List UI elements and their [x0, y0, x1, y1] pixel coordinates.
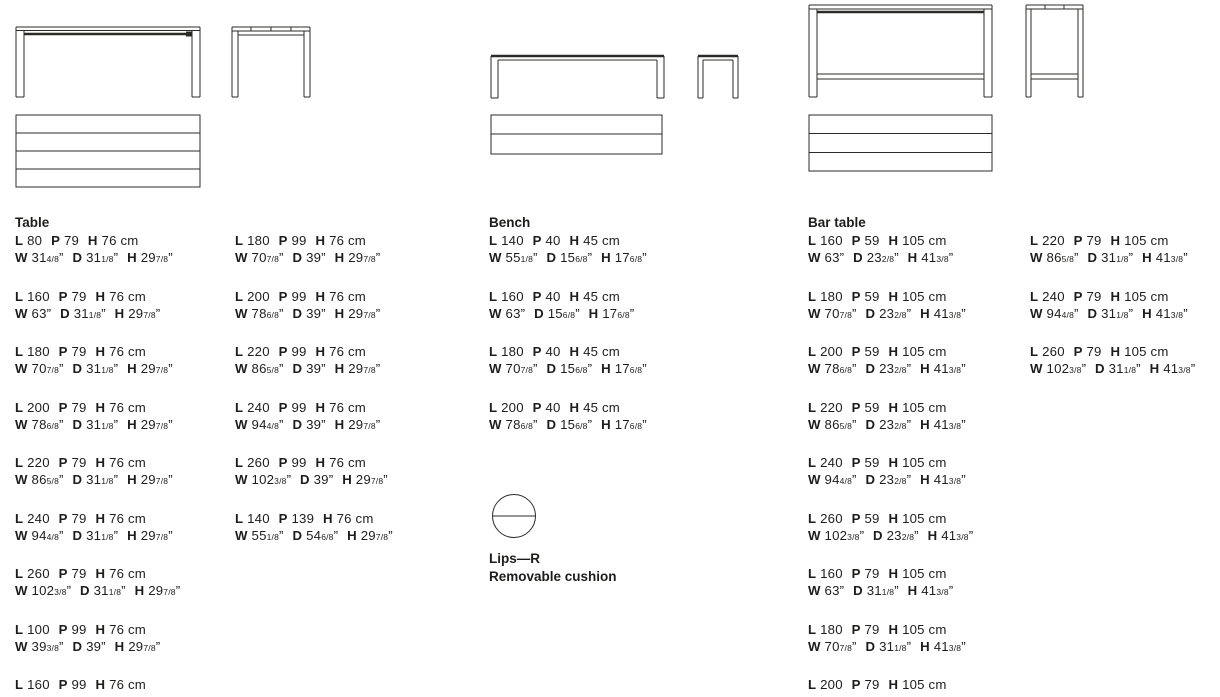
- spec-entry: L 100 P 99 H 76 cmW 393/8” D 39” H 297/8…: [15, 621, 233, 657]
- spec-entry: L 200 P 59 H 105 cmW 786/8” D 232/8” H 4…: [808, 343, 1026, 379]
- spec-entry: L 260 P 59 H 105 cmW 1023/8” D 232/8” H …: [808, 510, 1026, 546]
- table-specs-column-1: L 80 P 79 H 76 cmW 314/8” D 311/8” H 297…: [15, 232, 233, 697]
- spec-line-cm: L 200 P 40 H 45 cm: [489, 399, 707, 416]
- spec-entry: L 220 P 99 H 76 cmW 865/8” D 39” H 297/8…: [235, 343, 453, 379]
- spec-line-cm: L 200 P 59 H 105 cm: [808, 343, 1026, 360]
- spec-line-inches: W 786/8” D 311/8” H 297/8”: [15, 416, 233, 435]
- spec-line-inches: W 1023/8” D 311/8” H 413/8”: [1030, 360, 1220, 379]
- spec-line-inches: W 786/8” D 232/8” H 413/8”: [808, 360, 1026, 379]
- spec-line-inches: W 1023/8” D 311/8” H 297/8”: [15, 582, 233, 601]
- spec-line-inches: W 865/8” D 232/8” H 413/8”: [808, 416, 1026, 435]
- spec-line-cm: L 240 P 59 H 105 cm: [808, 454, 1026, 471]
- spec-line-cm: L 240 P 99 H 76 cm: [235, 399, 453, 416]
- spec-line-cm: L 220 P 59 H 105 cm: [808, 399, 1026, 416]
- spec-entry: L 140 P 139 H 76 cmW 551/8” D 546/8” H 2…: [235, 510, 453, 546]
- spec-line-cm: L 160 P 59 H 105 cm: [808, 232, 1026, 249]
- spec-line-inches: W 551/8” D 546/8” H 297/8”: [235, 527, 453, 546]
- bar-table-top-view-drawing: [808, 114, 993, 172]
- spec-entry: L 160 P 59 H 105 cmW 63” D 232/8” H 413/…: [808, 232, 1026, 268]
- spec-entry: L 140 P 40 H 45 cmW 551/8” D 156/8” H 17…: [489, 232, 707, 268]
- spec-line-inches: W 865/8” D 311/8” H 297/8”: [15, 471, 233, 490]
- spec-line-cm: L 220 P 99 H 76 cm: [235, 343, 453, 360]
- table-front-view-drawing: [15, 26, 201, 98]
- bench-section-title: Bench: [489, 214, 530, 231]
- spec-line-inches: W 1023/8” D 232/8” H 413/8”: [808, 527, 1026, 546]
- table-section-title: Table: [15, 214, 49, 231]
- spec-line-inches: W 551/8” D 156/8” H 176/8”: [489, 249, 707, 268]
- spec-line-cm: L 260 P 79 H 105 cm: [1030, 343, 1220, 360]
- spec-line-inches: W 707/8” D 232/8” H 413/8”: [808, 305, 1026, 324]
- spec-line-cm: L 140 P 139 H 76 cm: [235, 510, 453, 527]
- spec-entry: L 180 P 99 H 76 cmW 707/8” D 39” H 297/8…: [235, 232, 453, 268]
- spec-line-cm: L 200 P 79 H 76 cm: [15, 399, 233, 416]
- spec-line-cm: L 180 P 99 H 76 cm: [235, 232, 453, 249]
- spec-entry: L 200 P 79 H 76 cmW 786/8” D 311/8” H 29…: [15, 399, 233, 435]
- spec-entry: L 260 P 99 H 76 cmW 1023/8” D 39” H 297/…: [235, 454, 453, 490]
- spec-line-inches: W 944/8” D 232/8” H 413/8”: [808, 471, 1026, 490]
- spec-line-inches: W 786/8” D 39” H 297/8”: [235, 305, 453, 324]
- spec-entry: L 180 P 59 H 105 cmW 707/8” D 232/8” H 4…: [808, 288, 1026, 324]
- spec-line-cm: L 180 P 40 H 45 cm: [489, 343, 707, 360]
- spec-entry: L 200 P 79 H 105 cmW 786/8” D 311/8” H 4…: [808, 676, 1026, 697]
- bench-top-view-drawing: [490, 114, 663, 155]
- bar-table-specs-column-1: L 160 P 59 H 105 cmW 63” D 232/8” H 413/…: [808, 232, 1026, 697]
- spec-entry: L 240 P 79 H 76 cmW 944/8” D 311/8” H 29…: [15, 510, 233, 546]
- spec-entry: L 160 P 99 H 76 cmW 63” D 39” H 297/8”: [15, 676, 233, 697]
- spec-entry: L 200 P 99 H 76 cmW 786/8” D 39” H 297/8…: [235, 288, 453, 324]
- spec-entry: L 220 P 59 H 105 cmW 865/8” D 232/8” H 4…: [808, 399, 1026, 435]
- spec-entry: L 180 P 79 H 76 cmW 707/8” D 311/8” H 29…: [15, 343, 233, 379]
- spec-line-cm: L 220 P 79 H 105 cm: [1030, 232, 1220, 249]
- bar-table-side-view-drawing: [1025, 4, 1084, 98]
- spec-line-inches: W 786/8” D 156/8” H 176/8”: [489, 416, 707, 435]
- spec-line-inches: W 707/8” D 156/8” H 176/8”: [489, 360, 707, 379]
- spec-line-cm: L 160 P 99 H 76 cm: [15, 676, 233, 693]
- spec-line-cm: L 140 P 40 H 45 cm: [489, 232, 707, 249]
- bench-specs-column: L 140 P 40 H 45 cmW 551/8” D 156/8” H 17…: [489, 232, 707, 454]
- spec-line-cm: L 220 P 79 H 76 cm: [15, 454, 233, 471]
- table-side-view-drawing: [231, 26, 311, 98]
- spec-entry: L 260 P 79 H 76 cmW 1023/8” D 311/8” H 2…: [15, 565, 233, 601]
- table-specs-column-2: L 180 P 99 H 76 cmW 707/8” D 39” H 297/8…: [235, 232, 453, 565]
- furniture-spec-sheet: Table Bench Bar table L 80 P 79 H 76 cmW…: [0, 0, 1220, 697]
- spec-line-cm: L 240 P 79 H 105 cm: [1030, 288, 1220, 305]
- spec-entry: L 80 P 79 H 76 cmW 314/8” D 311/8” H 297…: [15, 232, 233, 268]
- spec-line-cm: L 160 P 79 H 76 cm: [15, 288, 233, 305]
- spec-line-inches: W 63” D 39” H 297/8”: [15, 693, 233, 697]
- spec-entry: L 220 P 79 H 76 cmW 865/8” D 311/8” H 29…: [15, 454, 233, 490]
- spec-entry: L 240 P 99 H 76 cmW 944/8” D 39” H 297/8…: [235, 399, 453, 435]
- spec-line-cm: L 200 P 79 H 105 cm: [808, 676, 1026, 693]
- spec-line-cm: L 180 P 79 H 76 cm: [15, 343, 233, 360]
- spec-line-cm: L 80 P 79 H 76 cm: [15, 232, 233, 249]
- spec-line-cm: L 240 P 79 H 76 cm: [15, 510, 233, 527]
- bar-table-front-view-drawing: [808, 4, 993, 98]
- bench-side-view-drawing: [697, 54, 739, 99]
- lips-r-name: Lips—R: [489, 550, 540, 568]
- spec-line-inches: W 707/8” D 311/8” H 413/8”: [808, 638, 1026, 657]
- lips-r-description: Removable cushion: [489, 568, 617, 586]
- spec-line-inches: W 865/8” D 39” H 297/8”: [235, 360, 453, 379]
- spec-line-inches: W 944/8” D 39” H 297/8”: [235, 416, 453, 435]
- spec-entry: L 220 P 79 H 105 cmW 865/8” D 311/8” H 4…: [1030, 232, 1220, 268]
- spec-line-cm: L 160 P 79 H 105 cm: [808, 565, 1026, 582]
- table-top-view-drawing: [15, 114, 201, 188]
- spec-entry: L 160 P 79 H 76 cmW 63” D 311/8” H 297/8…: [15, 288, 233, 324]
- spec-line-cm: L 160 P 40 H 45 cm: [489, 288, 707, 305]
- spec-line-inches: W 707/8” D 39” H 297/8”: [235, 249, 453, 268]
- spec-line-cm: L 100 P 99 H 76 cm: [15, 621, 233, 638]
- cushion-top-view-drawing: [491, 493, 537, 539]
- spec-line-inches: W 63” D 156/8” H 176/8”: [489, 305, 707, 324]
- spec-entry: L 260 P 79 H 105 cmW 1023/8” D 311/8” H …: [1030, 343, 1220, 379]
- spec-line-cm: L 180 P 59 H 105 cm: [808, 288, 1026, 305]
- spec-line-inches: W 63” D 232/8” H 413/8”: [808, 249, 1026, 268]
- spec-entry: L 240 P 59 H 105 cmW 944/8” D 232/8” H 4…: [808, 454, 1026, 490]
- spec-line-inches: W 1023/8” D 39” H 297/8”: [235, 471, 453, 490]
- spec-entry: L 180 P 79 H 105 cmW 707/8” D 311/8” H 4…: [808, 621, 1026, 657]
- spec-line-inches: W 786/8” D 311/8” H 413/8”: [808, 693, 1026, 697]
- bar-table-specs-column-2: L 220 P 79 H 105 cmW 865/8” D 311/8” H 4…: [1030, 232, 1220, 399]
- spec-line-inches: W 393/8” D 39” H 297/8”: [15, 638, 233, 657]
- spec-entry: L 200 P 40 H 45 cmW 786/8” D 156/8” H 17…: [489, 399, 707, 435]
- spec-line-inches: W 63” D 311/8” H 413/8”: [808, 582, 1026, 601]
- spec-line-inches: W 314/8” D 311/8” H 297/8”: [15, 249, 233, 268]
- bar-table-section-title: Bar table: [808, 214, 866, 231]
- spec-line-inches: W 865/8” D 311/8” H 413/8”: [1030, 249, 1220, 268]
- spec-line-cm: L 200 P 99 H 76 cm: [235, 288, 453, 305]
- spec-entry: L 160 P 40 H 45 cmW 63” D 156/8” H 176/8…: [489, 288, 707, 324]
- spec-line-inches: W 63” D 311/8” H 297/8”: [15, 305, 233, 324]
- spec-entry: L 180 P 40 H 45 cmW 707/8” D 156/8” H 17…: [489, 343, 707, 379]
- spec-line-cm: L 260 P 79 H 76 cm: [15, 565, 233, 582]
- spec-line-inches: W 944/8” D 311/8” H 413/8”: [1030, 305, 1220, 324]
- spec-line-cm: L 260 P 59 H 105 cm: [808, 510, 1026, 527]
- spec-line-cm: L 260 P 99 H 76 cm: [235, 454, 453, 471]
- spec-line-inches: W 707/8” D 311/8” H 297/8”: [15, 360, 233, 379]
- spec-entry: L 160 P 79 H 105 cmW 63” D 311/8” H 413/…: [808, 565, 1026, 601]
- spec-line-cm: L 180 P 79 H 105 cm: [808, 621, 1026, 638]
- spec-line-inches: W 944/8” D 311/8” H 297/8”: [15, 527, 233, 546]
- bench-front-view-drawing: [490, 54, 665, 99]
- spec-entry: L 240 P 79 H 105 cmW 944/8” D 311/8” H 4…: [1030, 288, 1220, 324]
